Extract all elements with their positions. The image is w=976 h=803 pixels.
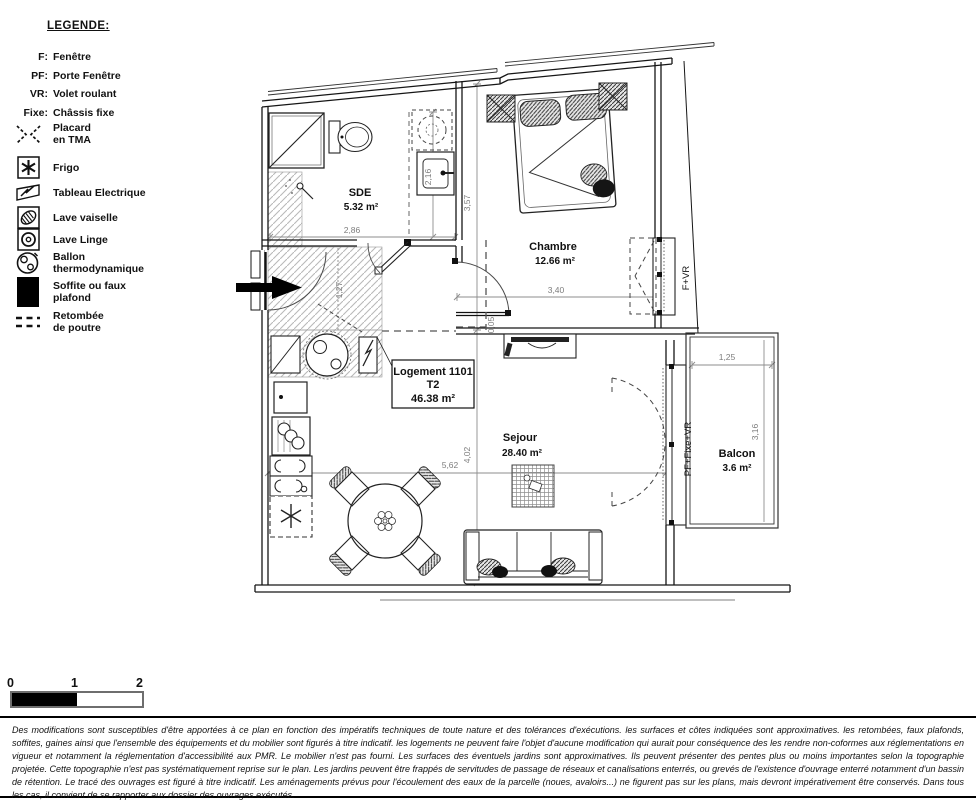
oven — [274, 382, 307, 413]
legend-item-ballon: Ballon thermodynamique — [12, 249, 144, 276]
dim-hall: 1,27 — [334, 281, 344, 298]
dim-sde-height: 2,16 — [423, 168, 433, 185]
toilet — [329, 121, 372, 153]
ballon-thermodynamique-icon — [12, 249, 44, 276]
unit-label-box: Logement 1101 T2 46.38 m² — [392, 360, 474, 408]
dim-sejour-height: 4,02 — [462, 446, 472, 463]
legend-item-label: Placard en TMA — [53, 122, 91, 146]
legend-item-label: Lave Linge — [53, 234, 108, 246]
abbr-label: Fenêtre — [53, 48, 91, 67]
kitchen-cabinet — [271, 336, 300, 373]
abbr-label: Porte Fenêtre — [53, 67, 121, 86]
tableau-electrique — [359, 337, 394, 373]
disclaimer-text: Des modifications sont susceptibles d'êt… — [12, 724, 964, 803]
retombee-poutre-icon — [12, 313, 44, 331]
unit-name: Logement 1101 — [393, 366, 472, 378]
sofa — [464, 530, 602, 584]
legend-item-label: Retombée de poutre — [53, 310, 104, 334]
dimension-texts: 2,86 2,16 3,40 3,57 0,05 1,27 5,62 4,02 … — [334, 168, 760, 470]
abbr-key: PF: — [8, 67, 48, 86]
tv-console — [504, 334, 576, 358]
room-sde-area: 5.32 m² — [344, 202, 379, 213]
unit-area: 46.38 m² — [411, 393, 455, 405]
legend-item-frigo: Frigo — [12, 155, 79, 180]
soffite-icon — [12, 277, 44, 307]
legend-item-tableau: Tableau Electrique — [12, 182, 146, 204]
legend-item-label: Soffite ou faux plafond — [53, 280, 126, 304]
scale-tick-0: 0 — [7, 676, 14, 690]
frigo-icon — [12, 155, 44, 180]
dining-set — [328, 465, 442, 577]
legend-item-label: Frigo — [53, 162, 79, 174]
scale-bar: 0 1 2 — [9, 676, 149, 710]
legend-item-label: Ballon thermodynamique — [53, 251, 144, 275]
room-sde-name: SDE — [349, 187, 372, 199]
room-chambre-area: 12.66 m² — [535, 256, 576, 267]
abbr-key: Fixe: — [8, 104, 48, 123]
dim-chambre-width: 3,40 — [548, 285, 565, 295]
room-sejour-name: Sejour — [503, 432, 538, 444]
room-sejour-area: 28.40 m² — [502, 448, 543, 459]
cooktop-sink — [270, 456, 312, 496]
abbr-label: Châssis fixe — [53, 104, 114, 123]
legend-abbr-fenetre: F: Fenêtre — [8, 48, 121, 67]
dim-sejour-width: 5,62 — [442, 460, 459, 470]
legend-abbreviations: F: Fenêtre PF: Porte Fenêtre VR: Volet r… — [8, 48, 121, 122]
abbr-key: VR: — [8, 85, 48, 104]
dim-balcon-height: 3,16 — [750, 423, 760, 440]
abbr-key: F: — [8, 48, 48, 67]
scale-tick-1: 1 — [71, 676, 78, 690]
legend-item-soffite: Soffite ou faux plafond — [12, 277, 126, 307]
scale-tick-2: 2 — [136, 676, 143, 690]
legend-abbr-chassis-fixe: Fixe: Châssis fixe — [8, 104, 121, 123]
legend: LEGENDE: F: Fenêtre PF: Porte Fenêtre VR… — [8, 12, 218, 342]
chambre-door — [452, 258, 511, 316]
lave-vaisselle — [272, 417, 310, 455]
scale-bar-gauge — [10, 691, 144, 708]
room-balcon-area: 3.6 m² — [723, 463, 753, 474]
disclaimer-block: Des modifications sont susceptibles d'êt… — [0, 716, 976, 798]
rug — [512, 465, 554, 507]
dim-balcon-width: 1,25 — [719, 352, 736, 362]
legend-abbr-porte-fenetre: PF: Porte Fenêtre — [8, 67, 121, 86]
legend-item-label: Tableau Electrique — [53, 187, 146, 199]
legend-title: LEGENDE: — [47, 20, 110, 32]
abbr-label: Volet roulant — [53, 85, 116, 104]
window-label-sejour: PF+Fixe+VR — [683, 422, 694, 477]
legend-item-placard: Placard en TMA — [12, 122, 91, 146]
placard-tma-sde — [412, 110, 452, 150]
dim-chambre-height: 3,57 — [462, 194, 472, 211]
window-label-chambre: F+VR — [681, 266, 692, 291]
scale-bar-filled-half — [12, 693, 77, 706]
room-chambre-name: Chambre — [529, 241, 577, 253]
dim-sde-width: 2,86 — [344, 225, 361, 235]
unit-type: T2 — [427, 379, 440, 391]
room-balcon-name: Balcon — [719, 448, 756, 460]
retombee-poutre-lines — [382, 240, 486, 331]
legend-abbr-volet-roulant: VR: Volet roulant — [8, 85, 121, 104]
legend-item-retombee: Retombée de poutre — [12, 310, 104, 334]
tableau-electrique-icon — [12, 182, 44, 204]
floor-plan-sheet: Logement 1101 T2 46.38 m² SDE 5.32 m² Ch… — [0, 0, 976, 800]
frigo — [270, 496, 312, 537]
legend-item-label: Lave vaiselle — [53, 212, 118, 224]
placard-icon — [12, 124, 44, 145]
dim-wall: 0,05 — [486, 316, 496, 333]
